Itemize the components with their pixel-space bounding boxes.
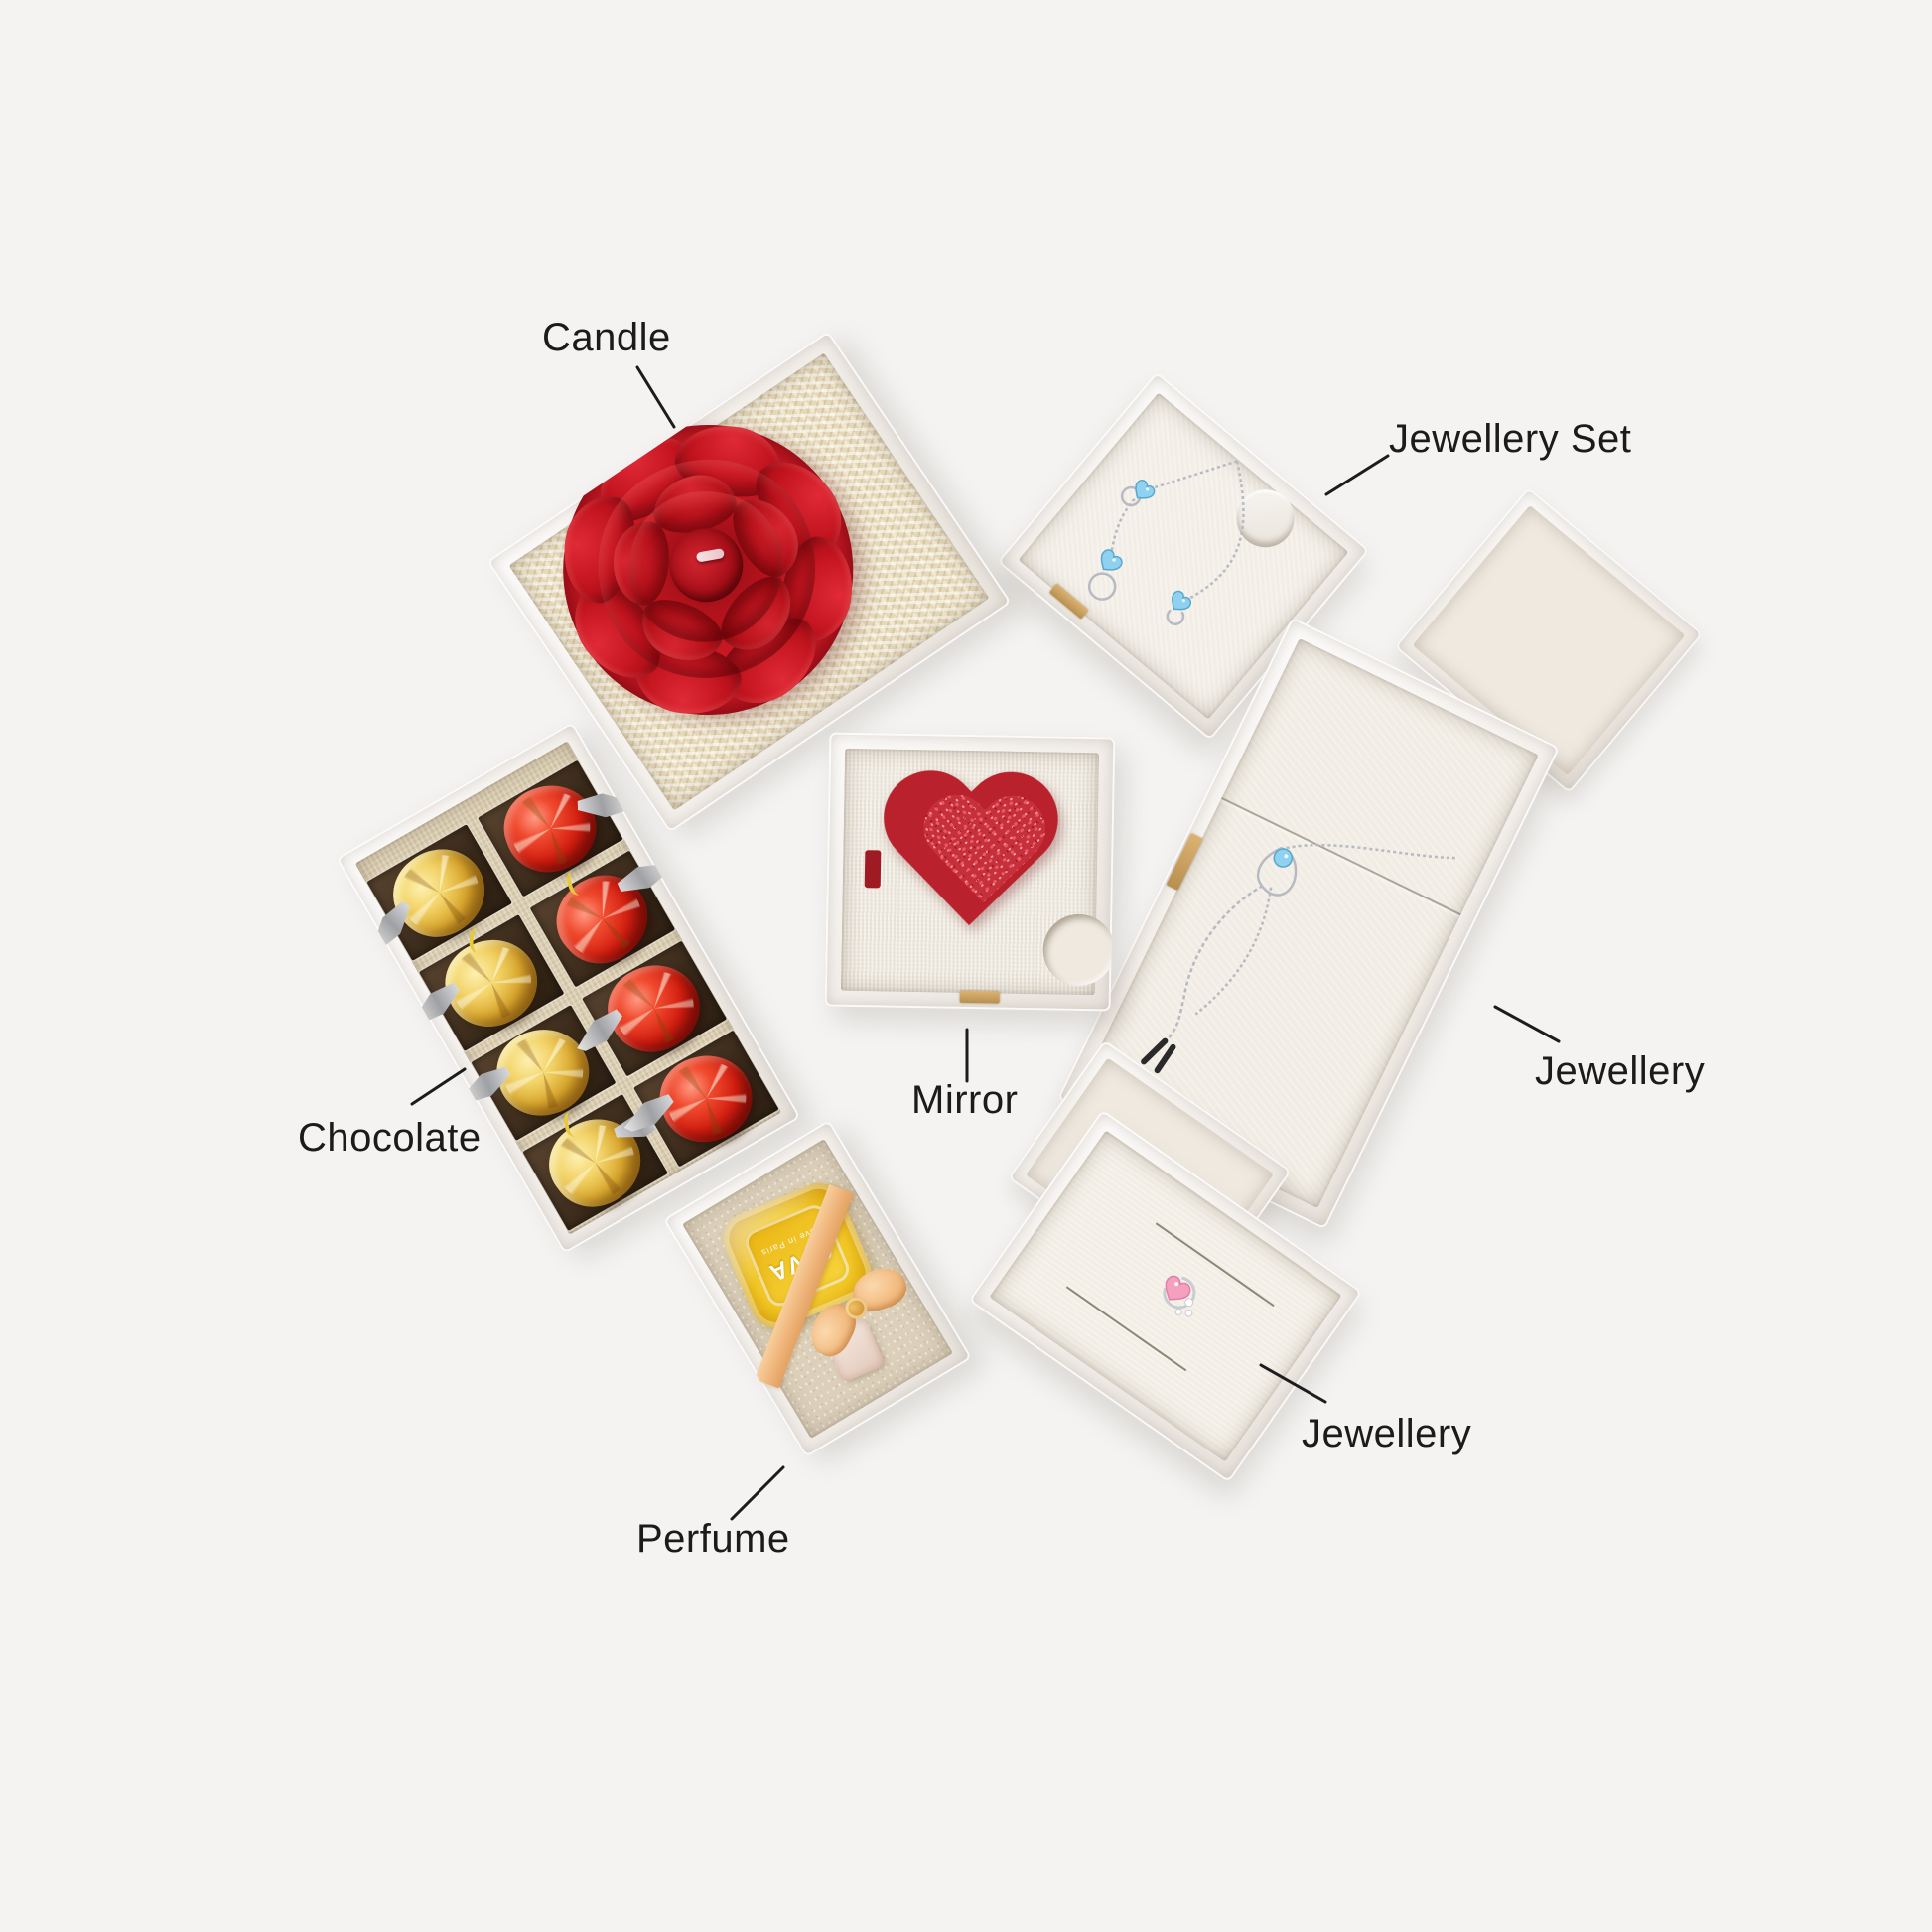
label-jewellery-bottom: Jewellery [1302,1412,1471,1456]
leader-jewellery-set [1326,456,1388,494]
label-candle: Candle [542,316,671,360]
label-jewellery-set: Jewellery Set [1389,417,1631,462]
leader-candle [637,367,674,427]
label-mirror: Mirror [911,1078,1018,1123]
leader-perfume [732,1467,783,1519]
label-perfume: Perfume [636,1517,790,1562]
label-jewellery-right: Jewellery [1535,1049,1705,1094]
gift-hamper-photo: GIVA Love in Paris [0,0,1932,1932]
leader-jewellery-right [1495,1007,1559,1041]
leader-jewellery-bottom [1261,1365,1325,1402]
leader-chocolate [412,1069,465,1104]
leader-lines [0,0,1932,1932]
label-chocolate: Chocolate [298,1116,482,1161]
